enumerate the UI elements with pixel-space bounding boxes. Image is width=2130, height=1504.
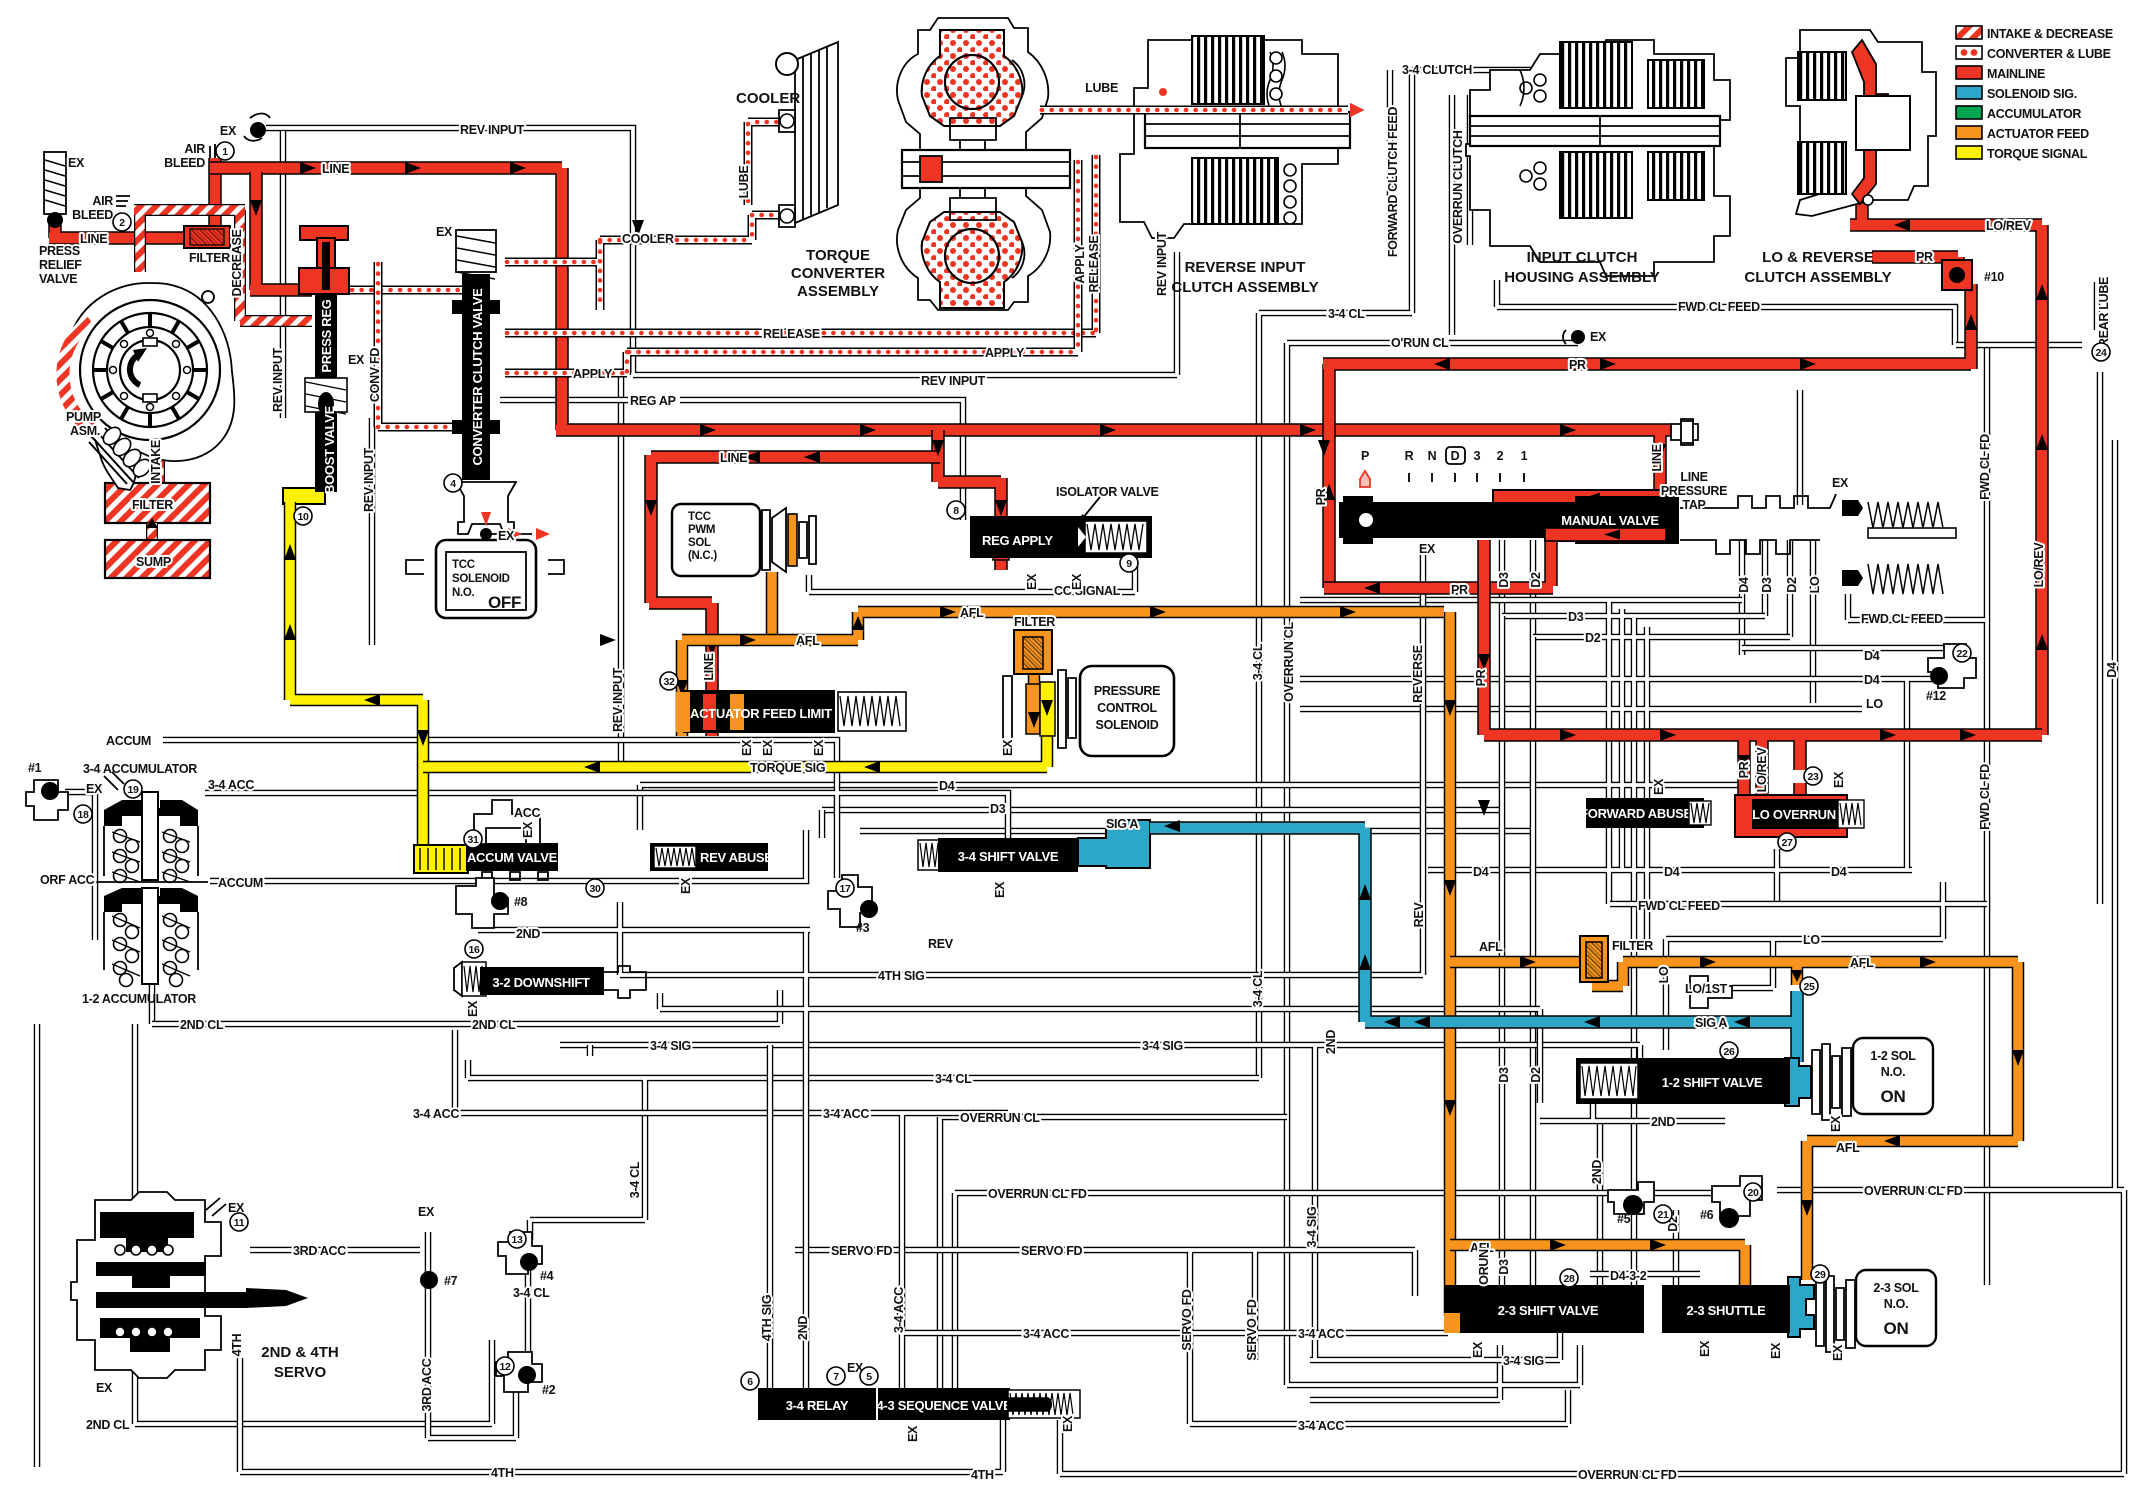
- svg-text:D4: D4: [939, 779, 955, 793]
- svg-text:#8: #8: [514, 895, 528, 909]
- svg-text:(N.C.): (N.C.): [688, 550, 717, 562]
- svg-text:4: 4: [450, 478, 456, 490]
- svg-text:MANUAL VALVE: MANUAL VALVE: [1561, 513, 1659, 528]
- svg-text:EX: EX: [96, 1381, 113, 1395]
- svg-text:N.O.: N.O.: [1884, 1297, 1909, 1311]
- svg-text:SERVO FD: SERVO FD: [1021, 1244, 1083, 1258]
- svg-text:TAP: TAP: [1682, 498, 1705, 512]
- svg-text:LO & REVERSE: LO & REVERSE: [1762, 249, 1874, 266]
- svg-text:CONVERTER & LUBE: CONVERTER & LUBE: [1987, 47, 2111, 61]
- svg-text:#5: #5: [1617, 1212, 1631, 1226]
- svg-text:4TH: 4TH: [491, 1466, 514, 1480]
- svg-text:LUBE: LUBE: [737, 166, 751, 199]
- svg-text:D2: D2: [1785, 577, 1799, 593]
- svg-text:2ND & 4TH: 2ND & 4TH: [261, 1344, 339, 1361]
- svg-text:REG APPLY: REG APPLY: [982, 533, 1053, 548]
- svg-text:#3: #3: [856, 921, 870, 935]
- svg-text:REVERSE: REVERSE: [1411, 645, 1425, 703]
- svg-text:AFL: AFL: [796, 634, 820, 648]
- svg-text:27: 27: [1781, 837, 1793, 849]
- svg-text:2-3 SOL: 2-3 SOL: [1873, 1281, 1919, 1295]
- svg-text:LUBE: LUBE: [1085, 81, 1118, 95]
- svg-text:LO: LO: [1808, 576, 1822, 593]
- svg-text:RELIEF: RELIEF: [39, 258, 82, 272]
- svg-text:APPLY: APPLY: [985, 346, 1025, 360]
- svg-text:#12: #12: [1926, 689, 1946, 703]
- svg-text:REV INPUT: REV INPUT: [1155, 231, 1169, 296]
- svg-text:D3: D3: [1568, 610, 1584, 624]
- svg-text:AFL: AFL: [1850, 956, 1874, 970]
- svg-text:3-4 CL: 3-4 CL: [1251, 970, 1265, 1007]
- svg-text:EX: EX: [1590, 330, 1607, 344]
- svg-text:4-3 SEQUENCE VALVE: 4-3 SEQUENCE VALVE: [877, 1398, 1013, 1413]
- svg-text:24: 24: [2095, 347, 2107, 359]
- svg-text:2ND: 2ND: [796, 1316, 810, 1340]
- svg-text:ORUN: ORUN: [1477, 1249, 1491, 1285]
- svg-text:29: 29: [1814, 1269, 1826, 1281]
- svg-text:3-4 SIG: 3-4 SIG: [1503, 1354, 1544, 1368]
- svg-text:D3: D3: [1497, 1259, 1511, 1275]
- svg-text:D2: D2: [1529, 572, 1543, 588]
- svg-text:2ND: 2ND: [1324, 1030, 1338, 1054]
- svg-text:SOLENOID: SOLENOID: [452, 573, 510, 585]
- svg-text:SERVO FD: SERVO FD: [1245, 1299, 1259, 1361]
- svg-text:INPUT CLUTCH: INPUT CLUTCH: [1527, 249, 1638, 266]
- svg-text:D4: D4: [1831, 865, 1847, 879]
- svg-text:2ND CL: 2ND CL: [472, 1018, 516, 1032]
- svg-text:LO/REV: LO/REV: [1755, 747, 1769, 793]
- svg-text:20: 20: [1747, 1187, 1759, 1199]
- svg-text:PR: PR: [1451, 583, 1468, 597]
- svg-text:3-4 SIG: 3-4 SIG: [1305, 1207, 1319, 1248]
- svg-text:3-4 ACC: 3-4 ACC: [1298, 1419, 1344, 1433]
- svg-text:FILTER: FILTER: [1612, 939, 1653, 953]
- svg-text:3-4 ACC: 3-4 ACC: [208, 778, 254, 792]
- svg-text:OVERRUN CLUTCH: OVERRUN CLUTCH: [1451, 130, 1465, 243]
- svg-text:2ND: 2ND: [1651, 1115, 1675, 1129]
- svg-text:30: 30: [589, 883, 601, 895]
- svg-text:D4: D4: [1664, 865, 1680, 879]
- svg-text:VALVE: VALVE: [39, 272, 77, 286]
- svg-text:D3: D3: [1497, 1067, 1511, 1083]
- svg-text:REV: REV: [1412, 902, 1426, 928]
- svg-text:REV INPUT: REV INPUT: [611, 667, 625, 732]
- svg-text:PR: PR: [1737, 761, 1751, 778]
- svg-text:ISOLATOR VALVE: ISOLATOR VALVE: [1056, 485, 1159, 499]
- svg-text:EX: EX: [498, 529, 515, 543]
- svg-text:RELEASE: RELEASE: [763, 327, 820, 341]
- svg-text:D: D: [1451, 449, 1460, 463]
- svg-text:D4: D4: [1864, 649, 1880, 663]
- svg-text:3-4 CL: 3-4 CL: [1328, 307, 1365, 321]
- svg-text:AIR: AIR: [92, 194, 113, 208]
- svg-text:EX: EX: [1419, 542, 1436, 556]
- svg-text:EX: EX: [906, 1425, 920, 1442]
- svg-text:TORQUE SIGNAL: TORQUE SIGNAL: [1987, 147, 2088, 161]
- svg-text:EX: EX: [1769, 1342, 1783, 1359]
- svg-text:PR: PR: [1569, 358, 1586, 372]
- svg-text:2ND: 2ND: [516, 927, 540, 941]
- svg-text:AFL: AFL: [960, 606, 984, 620]
- svg-text:REV INPUT: REV INPUT: [460, 123, 525, 137]
- svg-text:OVERRUN CL FD: OVERRUN CL FD: [1578, 1468, 1677, 1482]
- svg-text:EX: EX: [1831, 1344, 1845, 1361]
- svg-text:EX: EX: [86, 782, 103, 796]
- svg-text:2ND CL: 2ND CL: [180, 1018, 224, 1032]
- svg-text:TCC: TCC: [688, 511, 711, 523]
- svg-text:INTAKE: INTAKE: [149, 440, 163, 484]
- svg-text:SUMP: SUMP: [136, 555, 171, 569]
- svg-text:SOLENOID: SOLENOID: [1096, 718, 1159, 732]
- svg-text:REG AP: REG AP: [630, 394, 676, 408]
- svg-text:CONVERTER: CONVERTER: [791, 265, 885, 282]
- svg-text:1-2 SHIFT VALVE: 1-2 SHIFT VALVE: [1662, 1075, 1763, 1090]
- svg-text:3-4 ACC: 3-4 ACC: [413, 1107, 459, 1121]
- svg-text:LO/REV: LO/REV: [2032, 542, 2046, 588]
- svg-text:PR: PR: [1474, 669, 1488, 686]
- svg-text:EX: EX: [220, 124, 237, 138]
- svg-text:INTAKE & DECREASE: INTAKE & DECREASE: [1987, 27, 2113, 41]
- svg-text:D4: D4: [2105, 662, 2119, 678]
- svg-text:1-2 ACCUMULATOR: 1-2 ACCUMULATOR: [82, 992, 196, 1006]
- svg-text:OFF: OFF: [488, 593, 521, 612]
- svg-text:#4: #4: [540, 1269, 554, 1283]
- svg-text:TCC: TCC: [452, 559, 475, 571]
- svg-text:REV INPUT: REV INPUT: [921, 374, 986, 388]
- svg-text:EX: EX: [418, 1205, 435, 1219]
- svg-text:26: 26: [1723, 1046, 1735, 1058]
- svg-text:LO: LO: [1803, 933, 1820, 947]
- svg-text:D3: D3: [990, 802, 1006, 816]
- svg-text:SOLENOID SIG.: SOLENOID SIG.: [1987, 87, 2077, 101]
- svg-text:D3: D3: [1497, 572, 1511, 588]
- svg-text:22: 22: [1956, 648, 1968, 660]
- svg-text:ON: ON: [1881, 1087, 1906, 1106]
- svg-text:OVERRUN CL FD: OVERRUN CL FD: [1864, 1184, 1963, 1198]
- svg-text:4TH SIG: 4TH SIG: [878, 969, 925, 983]
- svg-text:3-2 DOWNSHIFT: 3-2 DOWNSHIFT: [492, 975, 590, 990]
- svg-text:SOL: SOL: [688, 537, 711, 549]
- svg-text:17: 17: [839, 883, 851, 895]
- svg-text:LINE: LINE: [80, 232, 107, 246]
- svg-text:FORWARD ABUSE: FORWARD ABUSE: [1580, 806, 1692, 821]
- svg-text:LO/1ST: LO/1ST: [1685, 982, 1728, 996]
- svg-text:EX: EX: [1832, 476, 1849, 490]
- svg-text:2ND CL: 2ND CL: [86, 1418, 130, 1432]
- svg-text:2: 2: [1497, 449, 1504, 463]
- svg-text:2ND: 2ND: [1590, 1160, 1604, 1184]
- svg-text:BOOST VALVE: BOOST VALVE: [322, 405, 337, 494]
- svg-text:EX: EX: [1829, 1115, 1843, 1132]
- svg-text:9: 9: [1126, 558, 1132, 570]
- svg-text:AFL: AFL: [1836, 1141, 1860, 1155]
- svg-text:D2: D2: [1529, 1067, 1543, 1083]
- svg-text:8: 8: [953, 505, 959, 517]
- svg-text:ACC: ACC: [514, 806, 540, 820]
- svg-text:FORWARD CLUTCH FEED: FORWARD CLUTCH FEED: [1386, 107, 1400, 258]
- svg-text:3-4 SIG: 3-4 SIG: [1142, 1039, 1183, 1053]
- svg-text:D4: D4: [1864, 673, 1880, 687]
- svg-text:EX: EX: [68, 156, 85, 170]
- svg-text:3-4 CL: 3-4 CL: [513, 1286, 550, 1300]
- svg-text:AIR: AIR: [184, 142, 205, 156]
- svg-text:7: 7: [833, 1371, 839, 1383]
- svg-text:SIG A: SIG A: [1695, 1016, 1727, 1030]
- svg-text:REV: REV: [928, 937, 954, 951]
- svg-text:EX: EX: [1652, 778, 1666, 795]
- svg-text:PR: PR: [1916, 250, 1933, 264]
- svg-text:D2: D2: [1585, 631, 1601, 645]
- svg-text:28: 28: [1563, 1273, 1575, 1285]
- svg-text:LINE: LINE: [1650, 444, 1664, 471]
- svg-text:EX: EX: [1061, 1415, 1075, 1432]
- svg-text:SIG A: SIG A: [1106, 817, 1138, 831]
- svg-text:LINE: LINE: [322, 162, 349, 176]
- svg-text:FILTER: FILTER: [1014, 615, 1055, 629]
- svg-text:#10: #10: [1984, 270, 2004, 284]
- svg-text:ACCUM: ACCUM: [106, 734, 151, 748]
- svg-text:LO OVERRUN: LO OVERRUN: [1752, 807, 1836, 822]
- svg-text:18: 18: [77, 809, 89, 821]
- svg-text:N: N: [1428, 449, 1437, 463]
- svg-text:3-4 ACCUMULATOR: 3-4 ACCUMULATOR: [83, 762, 197, 776]
- svg-text:#6: #6: [1700, 1208, 1714, 1222]
- svg-text:3-4 CLUTCH: 3-4 CLUTCH: [1402, 63, 1472, 77]
- svg-text:3-4 CL: 3-4 CL: [1251, 643, 1265, 680]
- svg-text:LINE: LINE: [1680, 470, 1707, 484]
- svg-text:CC SIGNAL: CC SIGNAL: [1054, 584, 1121, 598]
- svg-text:LO/REV: LO/REV: [1986, 219, 2032, 233]
- svg-text:EX: EX: [466, 1000, 480, 1017]
- svg-text:REV ABUSE: REV ABUSE: [700, 850, 773, 865]
- svg-text:CONV FD: CONV FD: [368, 348, 382, 402]
- svg-text:REVERSE INPUT: REVERSE INPUT: [1185, 259, 1306, 276]
- svg-text:PRESS REG: PRESS REG: [319, 299, 334, 372]
- svg-text:N.O.: N.O.: [1881, 1065, 1906, 1079]
- svg-text:3-4 ACC: 3-4 ACC: [1023, 1327, 1069, 1341]
- svg-text:13: 13: [511, 1234, 523, 1246]
- svg-text:OVERRUN CL FD: OVERRUN CL FD: [988, 1187, 1087, 1201]
- svg-text:ACCUMULATOR: ACCUMULATOR: [1987, 107, 2081, 121]
- svg-text:3-4 ACC: 3-4 ACC: [1298, 1327, 1344, 1341]
- svg-text:R: R: [1405, 449, 1414, 463]
- svg-text:4TH: 4TH: [230, 1333, 244, 1356]
- svg-text:PRESSURE: PRESSURE: [1661, 484, 1727, 498]
- svg-text:REV INPUT: REV INPUT: [271, 347, 285, 412]
- svg-text:ACTUATOR FEED LIMIT: ACTUATOR FEED LIMIT: [690, 706, 832, 721]
- svg-text:3-4 ACC: 3-4 ACC: [823, 1107, 869, 1121]
- svg-text:ACTUATOR FEED: ACTUATOR FEED: [1987, 127, 2089, 141]
- svg-text:BLEED: BLEED: [164, 156, 205, 170]
- svg-text:LINE: LINE: [702, 653, 716, 680]
- svg-text:CONVERTER CLUTCH VALVE: CONVERTER CLUTCH VALVE: [470, 288, 485, 466]
- svg-text:ASSEMBLY: ASSEMBLY: [797, 283, 879, 300]
- svg-text:CONTROL: CONTROL: [1097, 701, 1157, 715]
- svg-text:23: 23: [1807, 771, 1819, 783]
- svg-text:SERVO FD: SERVO FD: [831, 1244, 893, 1258]
- svg-text:2-3 SHUTTLE: 2-3 SHUTTLE: [1686, 1303, 1766, 1318]
- svg-text:FILTER: FILTER: [189, 251, 230, 265]
- svg-text:10: 10: [297, 511, 309, 523]
- svg-text:O'RUN CL: O'RUN CL: [1391, 336, 1449, 350]
- svg-text:SERVO FD: SERVO FD: [1180, 1289, 1194, 1351]
- svg-text:19: 19: [127, 784, 139, 796]
- svg-text:LO: LO: [1657, 966, 1671, 983]
- svg-text:ON: ON: [1884, 1319, 1909, 1338]
- svg-text:3-4 SIG: 3-4 SIG: [650, 1039, 691, 1053]
- svg-text:PRESSURE: PRESSURE: [1094, 684, 1160, 698]
- svg-text:21: 21: [1657, 1209, 1669, 1221]
- svg-text:MAINLINE: MAINLINE: [1987, 67, 2045, 81]
- svg-text:3-4 SHIFT VALVE: 3-4 SHIFT VALVE: [958, 849, 1059, 864]
- svg-text:SERVO: SERVO: [274, 1364, 327, 1381]
- svg-text:FWD CL FEED: FWD CL FEED: [1861, 612, 1943, 626]
- svg-text:25: 25: [1803, 981, 1815, 993]
- svg-text:AFL: AFL: [1479, 940, 1503, 954]
- svg-text:3-4 CL: 3-4 CL: [935, 1072, 972, 1086]
- svg-text:REAR LUBE: REAR LUBE: [2097, 277, 2111, 347]
- svg-text:EX: EX: [1698, 1340, 1712, 1357]
- svg-text:CLUTCH ASSEMBLY: CLUTCH ASSEMBLY: [1171, 279, 1318, 296]
- svg-text:ASM.: ASM.: [70, 424, 100, 438]
- svg-text:3RD ACC: 3RD ACC: [420, 1358, 434, 1411]
- svg-text:N.O.: N.O.: [452, 587, 475, 599]
- svg-text:HOUSING ASSEMBLY: HOUSING ASSEMBLY: [1504, 269, 1660, 286]
- svg-text:5: 5: [866, 1371, 872, 1383]
- svg-text:COOLER: COOLER: [622, 232, 674, 246]
- svg-text:3: 3: [1474, 449, 1481, 463]
- svg-text:32: 32: [663, 676, 675, 688]
- svg-text:D4: D4: [1737, 577, 1751, 593]
- svg-text:EX: EX: [1025, 573, 1039, 590]
- svg-text:D4-3-2: D4-3-2: [1610, 1269, 1647, 1283]
- svg-text:2-3 SHIFT VALVE: 2-3 SHIFT VALVE: [1498, 1303, 1599, 1318]
- svg-text:EX: EX: [812, 739, 826, 756]
- svg-text:REV INPUT: REV INPUT: [362, 447, 376, 512]
- svg-text:1: 1: [1521, 449, 1528, 463]
- svg-text:FWD CL FD: FWD CL FD: [1978, 434, 1992, 500]
- svg-text:EX: EX: [436, 225, 453, 239]
- svg-text:FILTER: FILTER: [132, 498, 173, 512]
- svg-text:EX: EX: [740, 739, 754, 756]
- svg-text:3-4 RELAY: 3-4 RELAY: [786, 1398, 849, 1413]
- svg-text:CLUTCH ASSEMBLY: CLUTCH ASSEMBLY: [1744, 269, 1891, 286]
- svg-text:3-4 ACC: 3-4 ACC: [892, 1287, 906, 1333]
- svg-text:RELEASE: RELEASE: [1087, 236, 1101, 293]
- svg-text:LO: LO: [1866, 697, 1883, 711]
- svg-text:4TH SIG: 4TH SIG: [760, 1295, 774, 1342]
- svg-text:COOLER: COOLER: [736, 90, 800, 107]
- svg-text:#2: #2: [542, 1383, 556, 1397]
- svg-text:12: 12: [499, 1361, 511, 1373]
- svg-text:#1: #1: [28, 761, 42, 775]
- svg-text:APPLY: APPLY: [573, 367, 613, 381]
- svg-text:3-4 CL: 3-4 CL: [628, 1161, 642, 1198]
- svg-text:TORQUE: TORQUE: [806, 247, 870, 264]
- svg-text:EX: EX: [993, 881, 1007, 898]
- svg-text:1-2 SOL: 1-2 SOL: [1870, 1049, 1916, 1063]
- svg-text:1: 1: [222, 146, 228, 158]
- svg-text:TORQUE SIG: TORQUE SIG: [750, 761, 825, 775]
- svg-text:FWD CL FD: FWD CL FD: [1978, 764, 1992, 830]
- svg-text:31: 31: [467, 834, 479, 846]
- svg-text:OVERRUN CL: OVERRUN CL: [960, 1111, 1040, 1125]
- svg-text:EX: EX: [348, 353, 365, 367]
- svg-text:P: P: [1361, 449, 1369, 463]
- svg-text:D3: D3: [1760, 577, 1774, 593]
- svg-text:2: 2: [119, 217, 125, 229]
- svg-text:OVERRUN CL: OVERRUN CL: [1282, 622, 1296, 702]
- svg-text:LINE: LINE: [720, 451, 747, 465]
- svg-text:EX: EX: [679, 877, 693, 894]
- svg-text:DECREASE: DECREASE: [230, 229, 244, 296]
- svg-text:APPLY: APPLY: [1073, 244, 1087, 284]
- svg-text:PR: PR: [1314, 488, 1328, 505]
- svg-text:EX: EX: [761, 739, 775, 756]
- svg-text:FWD CL FEED: FWD CL FEED: [1638, 899, 1720, 913]
- svg-text:ORF ACC: ORF ACC: [40, 873, 95, 887]
- svg-text:PWM: PWM: [688, 524, 715, 536]
- svg-text:EX: EX: [1070, 573, 1084, 590]
- svg-text:ACCUM: ACCUM: [218, 876, 263, 890]
- svg-text:BLEED: BLEED: [72, 208, 113, 222]
- svg-text:EX: EX: [1471, 1341, 1485, 1358]
- svg-text:16: 16: [468, 944, 480, 956]
- svg-text:EX: EX: [1001, 739, 1015, 756]
- svg-text:ACCUM VALVE: ACCUM VALVE: [467, 850, 558, 865]
- svg-text:#7: #7: [444, 1274, 458, 1288]
- svg-text:PRESS: PRESS: [39, 244, 80, 258]
- svg-text:PUMP: PUMP: [66, 410, 101, 424]
- svg-text:11: 11: [234, 1217, 245, 1229]
- svg-text:EX: EX: [521, 821, 535, 838]
- svg-text:3RD ACC: 3RD ACC: [293, 1244, 346, 1258]
- svg-text:D4: D4: [1473, 865, 1489, 879]
- svg-text:6: 6: [747, 1376, 753, 1388]
- svg-text:4TH: 4TH: [971, 1468, 994, 1482]
- svg-text:FWD CL FEED: FWD CL FEED: [1678, 300, 1760, 314]
- svg-text:EX: EX: [1832, 771, 1846, 788]
